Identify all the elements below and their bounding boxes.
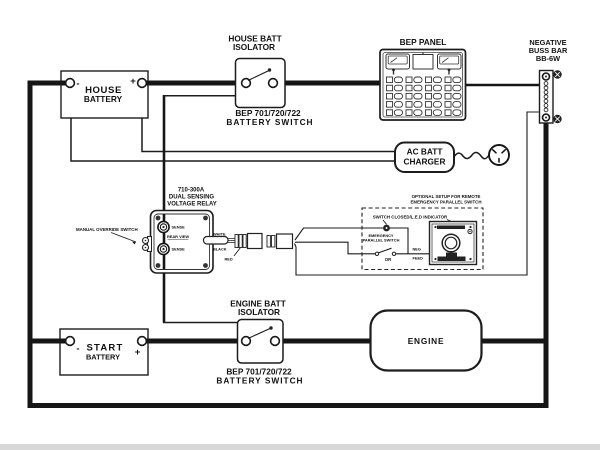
sense-bottom-link — [163, 323, 247, 337]
start-battery: - START BATTERY + — [60, 329, 148, 375]
start-neg-sign: - — [76, 344, 79, 355]
house-battery: - + HOUSE BATTERY — [61, 71, 148, 118]
house-isolator-terminal-2 — [269, 79, 278, 88]
panel-center-module — [413, 53, 433, 70]
relay-sense-label-top: SENSE — [172, 225, 186, 230]
power-outlet-icon — [489, 145, 509, 165]
indicator-label: SWITCH CLOSED/L.E.D INDICATOR — [373, 215, 448, 220]
sense-top-link — [164, 88, 247, 96]
wire-label-red: RED — [225, 257, 233, 262]
scan-edge — [0, 444, 600, 450]
house-isolator-title-2: ISOLATOR — [233, 42, 275, 52]
bep-panel: BEP PANEL — [380, 37, 466, 120]
start-pos-sign: + — [135, 347, 141, 358]
bussbar-terminals — [544, 82, 548, 112]
optional-setup-box: OPTIONAL SETUP FOR REMOTE EMERGENCY PARA… — [362, 194, 483, 270]
charger-label-2: CHARGER — [404, 157, 446, 167]
relay-sense-terminal-bottom — [158, 243, 169, 254]
engine-isolator-terminal-2 — [271, 337, 280, 346]
start-battery-label-2: BATTERY — [86, 353, 120, 362]
parallel-switch-label-2: PARALLEL SWITCH — [363, 238, 400, 243]
relay-sense-terminal-top — [158, 221, 169, 232]
diagram-canvas: - + HOUSE BATTERY HOUSE BATT ISOLATOR BE… — [0, 0, 600, 450]
negative-buss-bar: NEGATIVE BUSS BAR BB-6W — [529, 38, 568, 123]
override-label: MANUAL OVERRIDE SWITCH — [76, 227, 138, 232]
start-pos-terminal — [138, 337, 147, 346]
house-isolator-lever-tip — [268, 68, 271, 71]
house-isolator-model-2: BATTERY SWITCH — [226, 117, 313, 127]
charger-label-1: AC BATT — [407, 147, 443, 157]
indicator-leader-left — [383, 220, 387, 224]
remote-panel-label-strip — [437, 226, 465, 230]
relay-type-1: DUAL SENSING — [169, 195, 215, 201]
feed-label-2: FEED — [413, 256, 424, 261]
charger-cord — [454, 152, 489, 158]
engine-isolator-lever-tip — [269, 326, 272, 329]
bussbar-label-3: BB-6W — [536, 54, 560, 63]
engine-label: ENGINE — [408, 336, 445, 346]
voltage-relay: 710-300A DUAL SENSING VOLTAGE RELAY SENS… — [76, 188, 293, 274]
red-label-leader — [234, 248, 241, 257]
wire-label-black: BLACK — [213, 247, 227, 252]
engine-isolator-model-2: BATTERY SWITCH — [216, 376, 303, 386]
override-leader — [111, 233, 136, 243]
bussbar-bolt-top — [553, 70, 561, 78]
optional-title-1: OPTIONAL SETUP FOR REMOTE — [412, 194, 481, 199]
optional-title-2: EMERGENCY PARALLEL SWITCH — [411, 199, 482, 204]
or-label: OR — [385, 257, 392, 262]
ac-batt-charger: AC BATT CHARGER — [395, 143, 509, 173]
manual-override-switch — [143, 237, 152, 252]
house-batt-isolator: HOUSE BATT ISOLATOR BEP 701/720/722 BATT… — [226, 34, 313, 128]
remote-panel — [430, 222, 477, 265]
house-pos-sign: + — [130, 76, 136, 87]
bussbar-bolt-bottom — [553, 115, 561, 123]
house-battery-label-2: BATTERY — [84, 94, 123, 104]
start-neg-terminal — [66, 337, 75, 346]
led-indicator — [383, 225, 390, 232]
house-neg-terminal — [66, 79, 75, 88]
relay-type-2: VOLTAGE RELAY — [167, 202, 217, 208]
relay-model: 710-300A — [178, 188, 205, 194]
bep-panel-label: BEP PANEL — [400, 37, 447, 47]
emergency-parallel-switch — [375, 248, 395, 255]
relay-sense-label-bottom: SENSE — [172, 247, 186, 252]
wiring-diagram: - + HOUSE BATTERY HOUSE BATT ISOLATOR BE… — [0, 0, 600, 450]
house-pos-terminal — [138, 79, 147, 88]
wire-label-white: WHITE — [213, 232, 226, 237]
relay-rear-view: REAR VIEW — [167, 234, 189, 239]
feed-label-1: NEG — [413, 247, 421, 252]
house-neg-sign: - — [76, 79, 79, 90]
engine-isolator-title-2: ISOLATOR — [238, 307, 280, 317]
red-wire — [295, 242, 376, 254]
engine: ENGINE — [371, 311, 482, 371]
